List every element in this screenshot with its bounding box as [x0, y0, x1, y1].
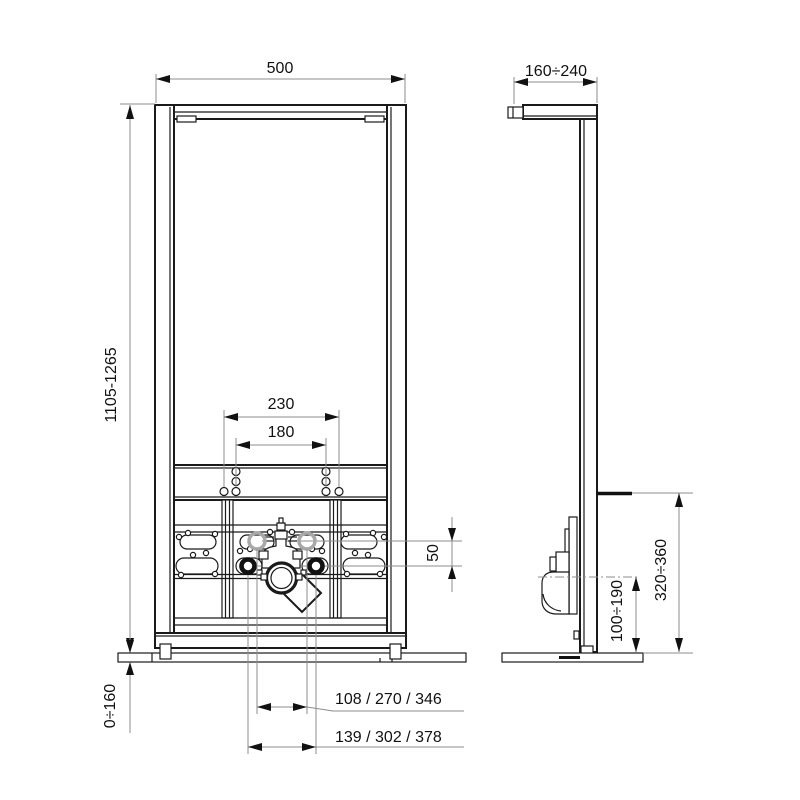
front-width-label: 500 — [267, 60, 294, 77]
inlet-neck — [275, 531, 287, 539]
bottom-crossbar — [155, 633, 406, 648]
top-bracket-left — [177, 116, 196, 122]
dim-front-width: 500 — [156, 60, 405, 103]
adjustable-foot-right — [390, 644, 401, 659]
mounting-crossbar — [174, 465, 387, 500]
side-view — [502, 105, 643, 662]
dim-floor-adjust: 0÷160 — [102, 617, 134, 733]
water-connection-right — [310, 560, 323, 573]
installation-frame-drawing: 500 160÷240 1105-1265 230 180 — [0, 0, 800, 800]
dim-front-height: 1105-1265 — [103, 104, 155, 652]
drain-assembly — [242, 518, 323, 612]
water-connection-left — [242, 560, 255, 573]
dim-connection-offset: 50 — [425, 517, 456, 592]
arm-end-cap — [508, 107, 523, 118]
dim-options-outer: 139 / 302 / 378 — [248, 575, 464, 754]
dim-side-drain-height: 100÷190 — [609, 577, 640, 652]
front-left-post — [155, 105, 174, 648]
side-top-arm — [523, 105, 597, 119]
front-height-label: 1105-1265 — [103, 347, 120, 422]
top-bracket-right — [365, 116, 384, 122]
options-outer-label: 139 / 302 / 378 — [335, 729, 442, 746]
dim-side-depth: 160÷240 — [514, 63, 597, 104]
options-inner-label: 108 / 270 / 346 — [335, 691, 442, 708]
side-connection-height-label: 320÷360 — [653, 539, 670, 601]
side-mounting-plate — [569, 517, 577, 614]
connection-offset-label: 50 — [425, 544, 442, 562]
front-right-post — [387, 105, 406, 648]
front-view — [118, 105, 466, 662]
holes-outer-label: 230 — [268, 396, 295, 413]
side-drain-height-label: 100÷190 — [609, 580, 626, 642]
side-depth-label: 160÷240 — [525, 63, 587, 80]
technical-drawing-page: 500 160÷240 1105-1265 230 180 — [0, 0, 800, 800]
side-post — [580, 105, 597, 652]
adjustable-foot-left — [160, 644, 171, 659]
dim-side-connection-height: 320÷360 — [632, 493, 693, 653]
holes-inner-label: 180 — [268, 424, 295, 441]
floor-adjust-label: 0÷160 — [102, 684, 119, 728]
side-drain-elbow — [542, 572, 569, 614]
